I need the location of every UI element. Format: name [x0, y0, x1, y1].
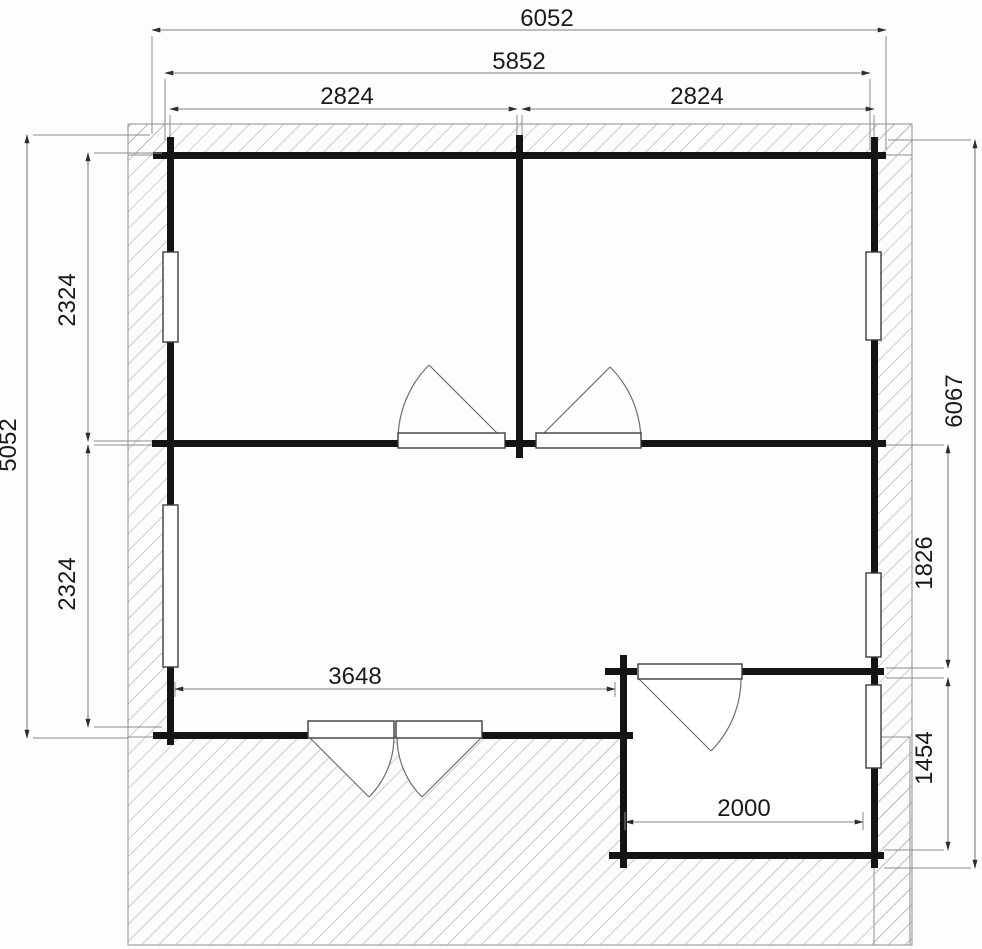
dim-label-right-mid: 1826 [911, 536, 938, 589]
floor-plan-svg: 6052 5852 2824 2824 5052 2324 2324 6067 … [0, 0, 982, 949]
dim-label-right-annex: 1454 [911, 731, 938, 784]
annex-door-leaf [638, 664, 742, 679]
floorplan-sheet: 6052 5852 2824 2824 5052 2324 2324 6067 … [0, 0, 982, 949]
dim-label-top-total: 6052 [520, 5, 573, 32]
window-left-lower [163, 505, 178, 667]
interior-door-right-leaf [536, 433, 641, 448]
interior-door-left-leaf [398, 433, 505, 448]
window-right-middle [866, 573, 881, 657]
dim-label-bottom-room: 3648 [328, 663, 381, 690]
dim-label-right-total: 6067 [941, 374, 968, 427]
dim-label-left-total: 5052 [0, 418, 22, 471]
dim-label-top-left-room: 2824 [320, 83, 373, 110]
window-left-upper [163, 252, 178, 342]
double-door-left-leaf [308, 721, 394, 738]
dim-label-top-right-room: 2824 [670, 83, 723, 110]
window-right-upper [866, 252, 881, 340]
dim-label-left-upper: 2324 [54, 273, 81, 326]
double-door-right-leaf [396, 721, 482, 738]
window-annex [866, 685, 881, 768]
dim-label-top-shell: 5852 [492, 48, 545, 75]
dim-label-annex-width: 2000 [717, 795, 770, 822]
dim-label-left-lower: 2324 [54, 557, 81, 610]
